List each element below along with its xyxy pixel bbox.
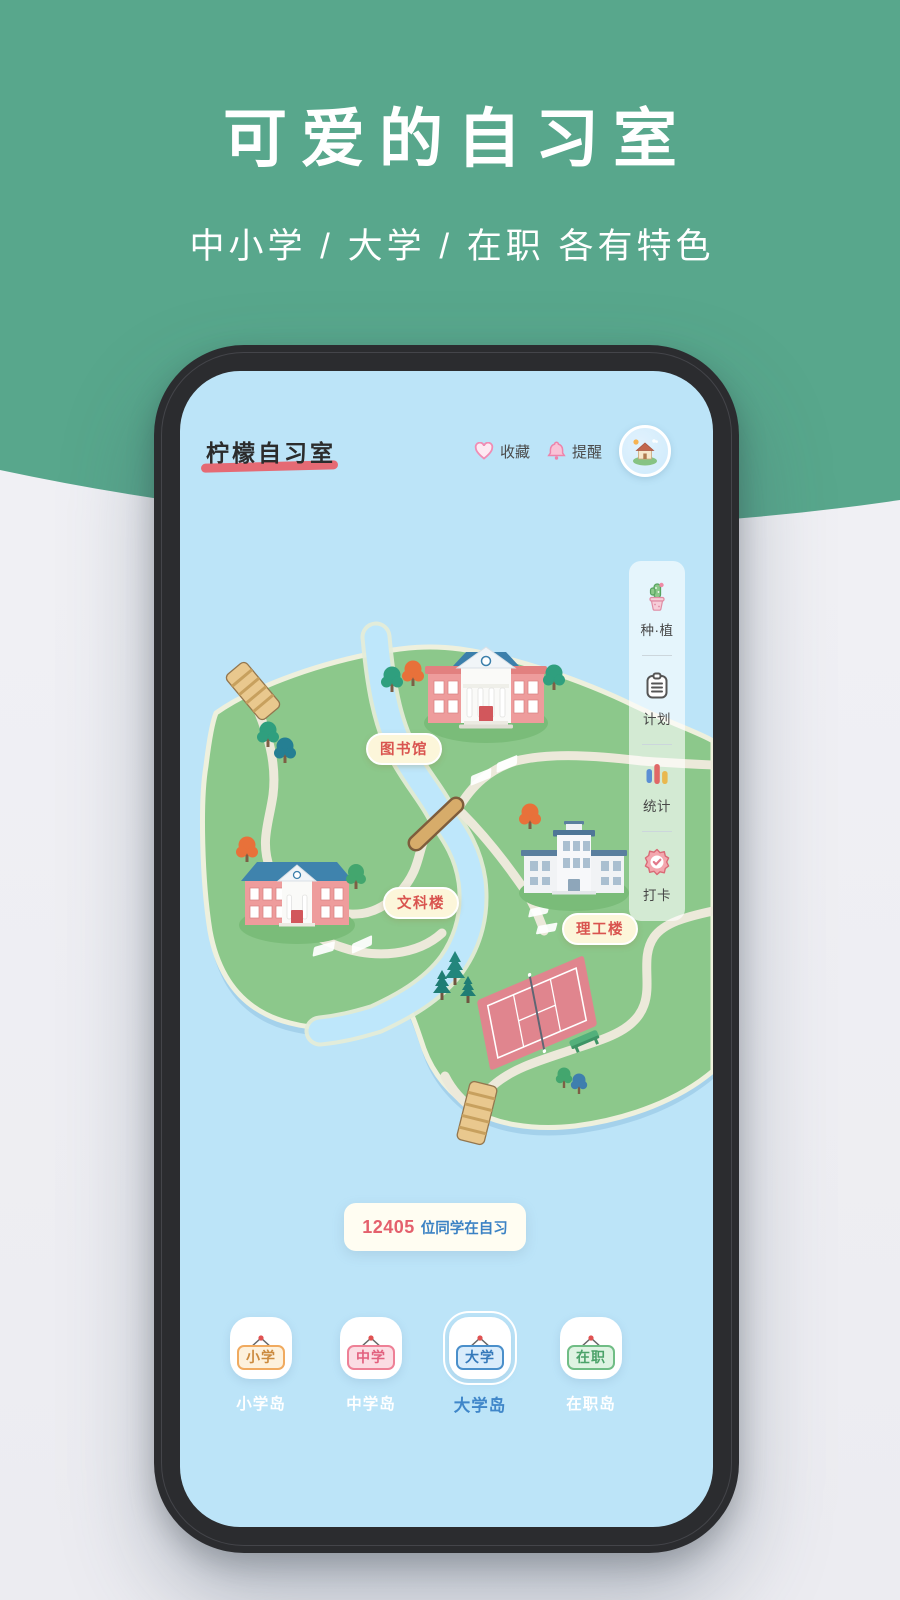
- bell-icon: [547, 441, 566, 461]
- hero-title: 可爱的自习室: [0, 88, 900, 180]
- heart-icon: [474, 442, 494, 460]
- rail-label-stats: 统计: [643, 795, 671, 815]
- tab-card: 中学: [340, 1317, 402, 1379]
- rail-label-checkin: 打卡: [643, 884, 671, 904]
- tab-label: 在职岛: [551, 1392, 631, 1414]
- potted-plant-icon: [643, 581, 671, 611]
- sign-wrap: 大学: [456, 1335, 504, 1370]
- side-rail: 种·植 计划: [629, 561, 685, 921]
- app-header: 柠檬自习室 收藏 提醒: [206, 423, 671, 479]
- rail-divider: [642, 831, 672, 832]
- tab-university-island[interactable]: 大学 大学岛: [440, 1317, 520, 1416]
- sign-wrap: 在职: [567, 1335, 615, 1370]
- tab-middle-school-island[interactable]: 中学 中学岛: [331, 1317, 411, 1414]
- phone-frame: 图书馆 文科楼 理工楼 柠檬自习室 收藏: [154, 345, 739, 1553]
- tab-sign: 大学: [456, 1345, 504, 1370]
- tab-sign: 小学: [237, 1345, 285, 1370]
- tab-label: 中学岛: [331, 1392, 411, 1414]
- study-count-banner: 12405 位同学在自习: [344, 1203, 526, 1251]
- tab-card: 大学: [449, 1317, 511, 1379]
- study-count: 12405: [362, 1217, 415, 1238]
- favorites-button[interactable]: 收藏: [474, 441, 530, 462]
- sign-wrap: 中学: [347, 1335, 395, 1370]
- map-label-library[interactable]: 图书馆: [366, 733, 442, 765]
- tab-card: 在职: [560, 1317, 622, 1379]
- checkin-badge-icon: [643, 848, 671, 876]
- tab-sign: 在职: [567, 1345, 615, 1370]
- page: 可爱的自习室 中小学 / 大学 / 在职 各有特色: [0, 0, 900, 1600]
- tab-label: 大学岛: [440, 1392, 520, 1416]
- rail-label-plant: 种·植: [641, 619, 674, 639]
- tab-card: 小学: [230, 1317, 292, 1379]
- sign-wrap: 小学: [237, 1335, 285, 1370]
- favorites-label: 收藏: [500, 441, 530, 462]
- study-count-suffix: 位同学在自习: [421, 1217, 508, 1238]
- rail-item-checkin[interactable]: 打卡: [643, 843, 671, 909]
- app-logo: 柠檬自习室: [206, 434, 336, 468]
- tab-label: 小学岛: [221, 1392, 301, 1414]
- rail-label-plan: 计划: [643, 708, 671, 728]
- hero-subtitle: 中小学 / 大学 / 在职 各有特色: [0, 218, 900, 269]
- rail-item-stats[interactable]: 统计: [643, 756, 671, 820]
- map-label-science[interactable]: 理工楼: [562, 913, 638, 945]
- avatar-house-icon: [627, 435, 663, 467]
- tab-elementary-island[interactable]: 小学 小学岛: [221, 1317, 301, 1414]
- tab-working-island[interactable]: 在职 在职岛: [551, 1317, 631, 1414]
- rail-divider: [642, 744, 672, 745]
- reminders-button[interactable]: 提醒: [547, 441, 602, 462]
- app-logo-text: 柠檬自习室: [206, 440, 336, 466]
- rail-divider: [642, 655, 672, 656]
- plan-clipboard-icon: [644, 672, 670, 700]
- rail-item-plant[interactable]: 种·植: [641, 576, 674, 644]
- avatar[interactable]: [619, 425, 671, 477]
- map-label-liberal-arts[interactable]: 文科楼: [383, 887, 459, 919]
- liberal-arts-building[interactable]: [239, 862, 355, 944]
- stats-bars-icon: [644, 761, 670, 787]
- reminders-label: 提醒: [572, 441, 602, 462]
- phone-screen: 图书馆 文科楼 理工楼 柠檬自习室 收藏: [180, 371, 713, 1527]
- rail-item-plan[interactable]: 计划: [643, 667, 671, 733]
- tab-sign: 中学: [347, 1345, 395, 1370]
- header-actions: 收藏 提醒: [474, 425, 671, 477]
